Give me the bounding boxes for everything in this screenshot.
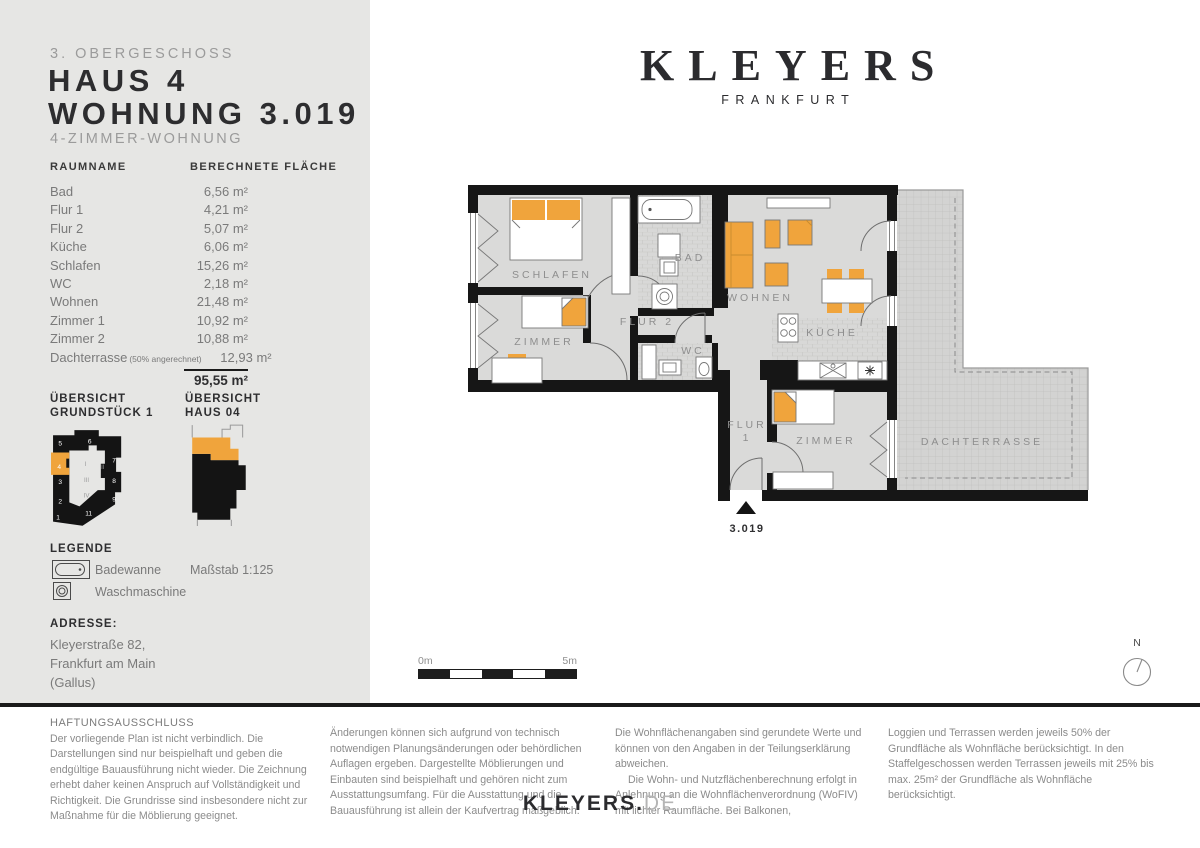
unit-number-label: 3.019 xyxy=(729,523,764,535)
svg-text:III: III xyxy=(84,477,89,484)
room-label-flur2: FLUR 2 xyxy=(620,316,674,328)
legend-bathtub-label: Badewanne xyxy=(95,563,161,577)
area-table: Bad6,56 m² Flur 14,21 m² Flur 25,07 m² K… xyxy=(50,184,248,388)
svg-text:11: 11 xyxy=(85,511,92,518)
svg-text:9: 9 xyxy=(112,496,116,503)
brand-city: FRANKFURT xyxy=(640,93,937,107)
page-title: HAUS 4 WOHNUNG 3.019 xyxy=(48,64,360,130)
table-row: Zimmer 210,88 m² xyxy=(50,331,248,349)
svg-text:I: I xyxy=(85,461,87,468)
floorplan-sheet: 3. OBERGESCHOSS HAUS 4 WOHNUNG 3.019 4-Z… xyxy=(0,0,1200,848)
column-header-room: RAUMNAME xyxy=(50,161,127,173)
apartment-title: WOHNUNG 3.019 xyxy=(48,97,360,130)
brand-header: KLEYERS FRANKFURT xyxy=(640,40,930,107)
north-label: N xyxy=(1133,637,1141,649)
website-link: KLEYERS.DE xyxy=(0,792,1200,816)
total-area: 95,55 m² xyxy=(178,373,248,388)
house-04-map xyxy=(185,423,255,526)
column-header-area: BERECHNETE FLÄCHE xyxy=(190,161,337,173)
room-label-wc: WC xyxy=(681,345,705,357)
apartment-type: 4-ZIMMER-WOHNUNG xyxy=(50,131,243,147)
table-row: WC2,18 m² xyxy=(50,276,248,294)
scale-label: Maßstab 1:125 xyxy=(190,563,273,577)
website-tld: DE xyxy=(644,792,677,815)
svg-text:3: 3 xyxy=(58,479,62,486)
floor-label: 3. OBERGESCHOSS xyxy=(50,46,234,62)
bathtub-icon xyxy=(52,560,90,579)
house-lower-floors xyxy=(192,454,246,520)
legend-washer-label: Waschmaschine xyxy=(95,585,186,599)
svg-text:IV: IV xyxy=(84,492,91,499)
total-divider xyxy=(184,369,248,371)
svg-text:6: 6 xyxy=(88,438,92,445)
table-row: Flur 14,21 m² xyxy=(50,202,248,220)
scale-start-label: 0m xyxy=(418,655,433,667)
room-label-schlafen: SCHLAFEN xyxy=(512,269,592,281)
svg-text:4: 4 xyxy=(57,464,61,471)
table-row: Schlafen15,26 m² xyxy=(50,258,248,276)
scale-bar-segments xyxy=(418,669,577,679)
legend-heading: LEGENDE xyxy=(50,543,113,555)
entrance-arrow xyxy=(736,501,756,514)
room-label-flur1: FLUR xyxy=(727,419,766,431)
svg-text:7: 7 xyxy=(112,458,116,465)
floor-plan: SCHLAFEN ZIMMER BAD FLUR 2 WC WOHNEN KÜC… xyxy=(460,168,1100,568)
svg-text:2: 2 xyxy=(58,498,62,505)
svg-text:8: 8 xyxy=(112,478,116,485)
room-label-bad: BAD xyxy=(675,252,706,264)
house-title: HAUS 4 xyxy=(48,64,360,97)
table-row: Flur 25,07 m² xyxy=(50,221,248,239)
svg-text:1: 1 xyxy=(56,515,60,522)
table-row: Bad6,56 m² xyxy=(50,184,248,202)
table-total-row: 95,55 m² xyxy=(50,373,248,388)
address-line: Kleyerstraße 82, xyxy=(50,637,145,652)
svg-text:5: 5 xyxy=(58,440,62,447)
brand-logo: KLEYERS xyxy=(640,40,944,91)
table-row: Küche6,06 m² xyxy=(50,239,248,257)
room-label-zimmer-bottom: ZIMMER xyxy=(796,435,855,447)
footer-divider xyxy=(0,703,1200,707)
svg-text:II: II xyxy=(101,464,105,471)
table-row: Zimmer 110,92 m² xyxy=(50,313,248,331)
scale-end-label: 5m xyxy=(562,655,577,667)
website-bold: KLEYERS. xyxy=(523,792,644,815)
room-label-wohnen: WOHNEN xyxy=(727,292,793,304)
overview-house-heading: ÜBERSICHT HAUS 04 xyxy=(185,392,261,420)
address-heading: ADRESSE: xyxy=(50,618,117,630)
disclaimer-heading: HAFTUNGSAUSSCHLUSS xyxy=(50,716,318,732)
site-plan-map: 5 6 7 8 9 4 3 2 1 11 I II III IV xyxy=(50,423,172,537)
info-panel: 3. OBERGESCHOSS HAUS 4 WOHNUNG 3.019 4-Z… xyxy=(0,0,370,703)
address-line: (Gallus) xyxy=(50,675,96,690)
scale-bar: 0m 5m xyxy=(418,655,577,679)
table-row: Wohnen21,48 m² xyxy=(50,294,248,312)
room-label-zimmer-left: ZIMMER xyxy=(514,336,573,348)
room-label-dachterrasse: DACHTERRASSE xyxy=(921,436,1043,448)
overview-plot-heading: ÜBERSICHT GRUNDSTÜCK 1 xyxy=(50,392,153,420)
washing-machine-icon xyxy=(53,582,71,600)
table-row: Dachterrasse(50% angerechnet)12,93 m² xyxy=(50,350,248,368)
room-label-kueche: KÜCHE xyxy=(806,327,858,339)
address-line: Frankfurt am Main xyxy=(50,656,155,671)
north-arrow-icon: N xyxy=(1108,634,1166,694)
room-label-flur1-number: 1 xyxy=(743,432,752,444)
